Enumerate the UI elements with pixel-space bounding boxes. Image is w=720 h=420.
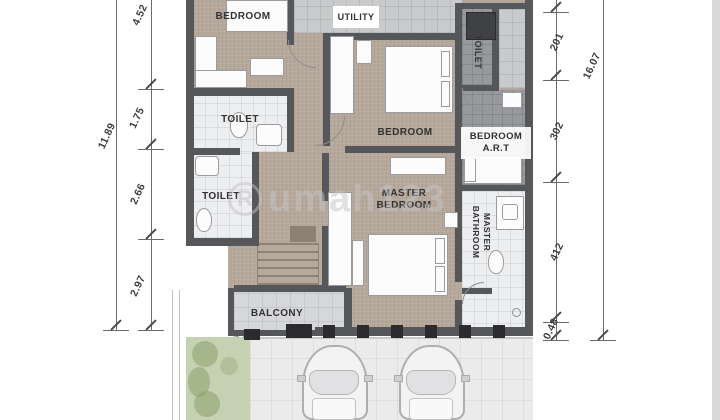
car-roof xyxy=(312,398,356,420)
label-master-bathroom-line1: MASTER xyxy=(482,213,492,251)
dimension-tick xyxy=(543,182,569,183)
shrub xyxy=(194,391,220,417)
label-utility: UTILITY xyxy=(333,6,379,28)
planter-box xyxy=(286,324,312,338)
floorplan-canvas: 11.89 4.52 1.75 2.66 2.97 201 302 412 0.… xyxy=(0,0,720,420)
shower-head xyxy=(512,308,521,317)
dimension-line-left-total xyxy=(116,0,117,331)
car-left xyxy=(302,345,368,420)
dim-left-seg-1: 4.52 xyxy=(126,0,154,36)
dim-right-seg-3: 412 xyxy=(543,231,571,272)
rail-post xyxy=(459,325,471,338)
pillow xyxy=(435,238,445,264)
dim-left-seg-4: 2.97 xyxy=(124,265,152,306)
pillow xyxy=(435,266,445,292)
shelf xyxy=(502,92,522,108)
dim-right-seg-2: 302 xyxy=(543,110,571,151)
wall xyxy=(228,288,234,336)
dimension-tick xyxy=(138,330,164,331)
rail-post xyxy=(493,325,505,338)
dimension-tick xyxy=(543,12,569,13)
label-master-bedroom-line1: MASTER xyxy=(382,188,427,199)
label-master-bathroom-line2: BATHROOM xyxy=(471,206,481,259)
car-mirror xyxy=(297,375,306,382)
wall xyxy=(186,88,294,96)
label-bedroom-top-left: BEDROOM xyxy=(198,11,288,22)
label-master-bathroom: MASTER BATHROOM xyxy=(470,189,492,275)
wall xyxy=(186,0,194,246)
dimension-tick xyxy=(590,340,616,341)
dim-left-seg-2: 1.75 xyxy=(123,97,151,138)
dimension-tick xyxy=(543,80,569,81)
wall xyxy=(455,3,525,9)
floor-top-right-strip xyxy=(499,8,525,88)
wall xyxy=(234,285,346,292)
outside-white xyxy=(186,246,228,336)
rail-post xyxy=(357,325,369,338)
wall xyxy=(455,190,462,282)
wall xyxy=(345,146,455,153)
label-toilet-upper-left: TOILET xyxy=(205,114,275,125)
dresser xyxy=(390,157,446,175)
car-right xyxy=(399,345,465,420)
label-balcony: BALCONY xyxy=(237,308,317,319)
wardrobe xyxy=(330,36,354,114)
rail-post xyxy=(323,325,335,338)
dim-left-seg-3: 2.66 xyxy=(124,173,152,214)
shrub xyxy=(192,341,218,367)
side-table xyxy=(250,58,284,76)
side-table xyxy=(356,40,372,64)
dresser xyxy=(195,70,247,88)
pillow xyxy=(441,51,450,77)
rail-post xyxy=(391,325,403,338)
image-right-edge-band xyxy=(712,0,720,420)
car-windshield xyxy=(309,370,359,395)
label-bedroom-art-line2: A.R.T xyxy=(483,143,510,154)
rail-post xyxy=(425,325,437,338)
wardrobe xyxy=(328,192,352,286)
toilet-fixture xyxy=(196,208,212,232)
label-bedroom-art: BEDROOM A.R.T xyxy=(461,127,531,159)
dimension-line-left-segments xyxy=(151,0,152,331)
dimension-tick xyxy=(138,149,164,150)
stair-landing xyxy=(290,226,316,242)
curb-line xyxy=(179,290,180,420)
dimension-tick xyxy=(138,89,164,90)
curb-line xyxy=(172,290,173,420)
wall xyxy=(186,148,240,155)
planter-box xyxy=(244,329,260,340)
dim-right-total: 16.07 xyxy=(578,45,606,86)
dimension-tick xyxy=(138,239,164,240)
label-bedroom-art-line1: BEDROOM xyxy=(470,131,522,142)
shrub xyxy=(220,357,238,375)
label-bedroom-middle: BEDROOM xyxy=(360,127,450,138)
sink xyxy=(256,124,282,146)
nightstand xyxy=(444,212,458,228)
label-master-bedroom: MASTER BEDROOM xyxy=(354,188,454,212)
basin xyxy=(502,204,518,220)
car-roof xyxy=(409,398,453,420)
car-windshield xyxy=(406,370,456,395)
staircase xyxy=(257,243,319,285)
wall xyxy=(287,88,294,152)
dim-right-seg-1: 201 xyxy=(543,21,571,62)
label-master-bedroom-line2: BEDROOM xyxy=(376,200,431,211)
garden-strip xyxy=(186,337,250,420)
sink xyxy=(195,156,219,176)
wall xyxy=(287,0,294,45)
dimension-tick xyxy=(103,330,129,331)
label-toilet-top-right: TOILET xyxy=(471,22,483,82)
label-toilet-lower-left: TOILET xyxy=(186,191,256,202)
car-mirror xyxy=(461,375,470,382)
wall xyxy=(186,238,252,246)
car-mirror xyxy=(394,375,403,382)
pillow xyxy=(464,158,476,182)
car-mirror xyxy=(364,375,373,382)
driveway xyxy=(250,337,533,420)
bench xyxy=(352,240,364,286)
wall xyxy=(525,0,533,336)
pillow xyxy=(441,81,450,107)
